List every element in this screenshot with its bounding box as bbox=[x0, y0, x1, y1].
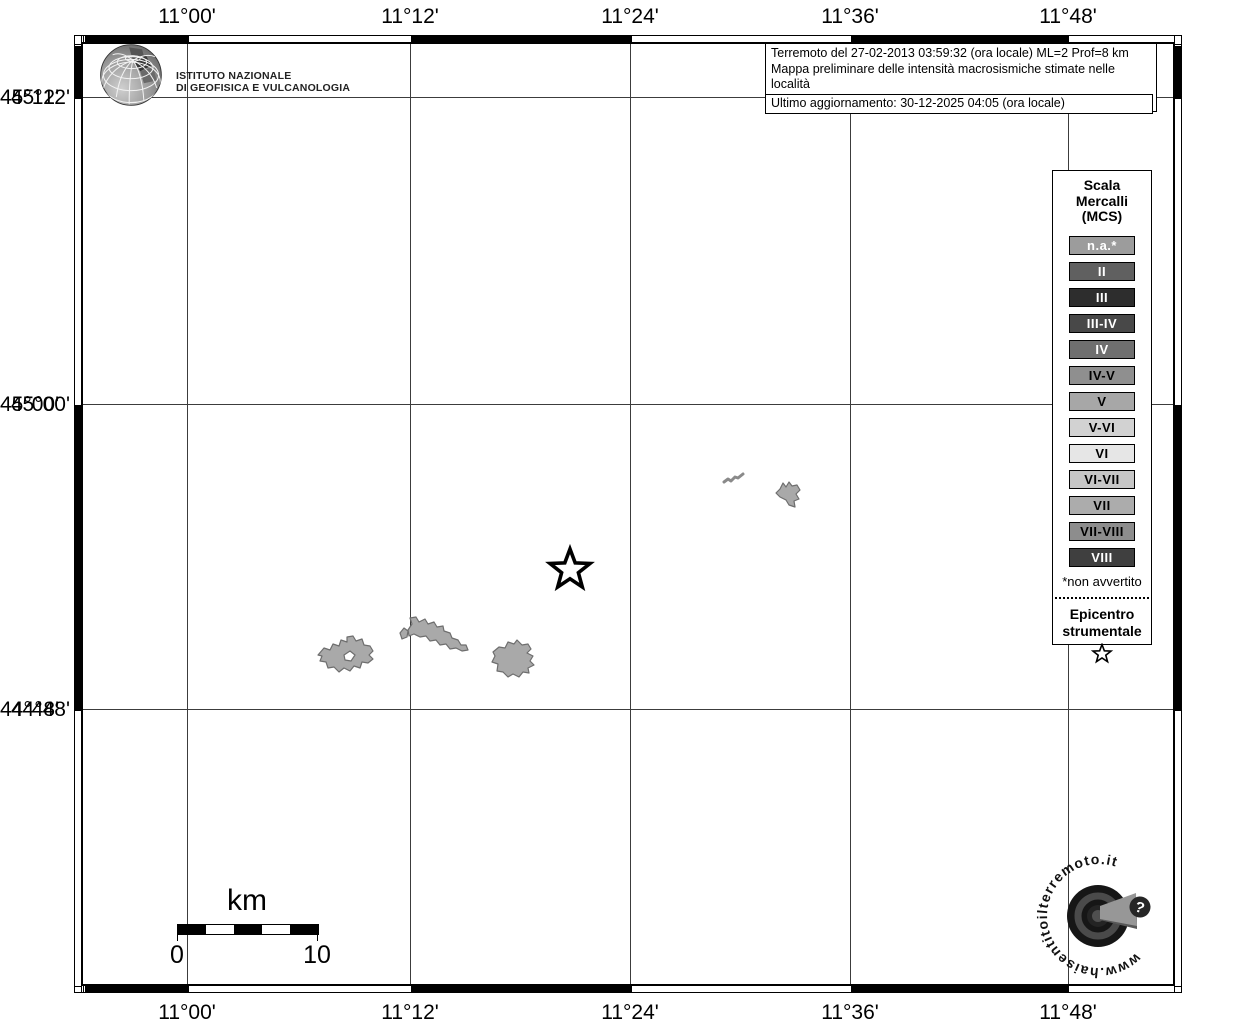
seismograph-icon bbox=[1067, 885, 1137, 947]
question-mark-icon: ? bbox=[1127, 894, 1153, 920]
earthquake-intensity-map: 11°00' 11°12' 11°24' 11°36' 11°48' 11°00… bbox=[0, 0, 1254, 1024]
lon-tick-label: 11°36' bbox=[802, 1001, 898, 1024]
scalebar bbox=[177, 924, 319, 935]
gridline bbox=[850, 44, 851, 984]
lon-tick-label: 11°12' bbox=[362, 5, 458, 29]
map-frame-left bbox=[74, 35, 82, 993]
legend-divider bbox=[1055, 597, 1149, 599]
legend-title-line2: Mercalli bbox=[1053, 194, 1151, 210]
lon-tick-label: 11°48' bbox=[1020, 5, 1116, 29]
legend-item-iv: IV bbox=[1069, 340, 1135, 359]
svg-text:?: ? bbox=[1133, 898, 1147, 917]
epicenter-legend-star-icon bbox=[1090, 643, 1114, 666]
scalebar-start-label: 0 bbox=[147, 941, 207, 970]
legend-item-vii: VII bbox=[1069, 496, 1135, 515]
map-frame-top bbox=[74, 35, 1182, 43]
epicenter-star-icon bbox=[550, 549, 590, 587]
legend-item-vi: VI bbox=[1069, 444, 1135, 463]
legend-title-line3: (MCS) bbox=[1053, 209, 1151, 225]
legend-item-vi-vii: VI-VII bbox=[1069, 470, 1135, 489]
lon-tick-label: 11°00' bbox=[139, 5, 235, 29]
scalebar-tick bbox=[177, 934, 178, 941]
legend-item-vii-viii: VII-VIII bbox=[1069, 522, 1135, 541]
locality-polygon bbox=[776, 482, 800, 507]
locality-polygon bbox=[400, 628, 408, 639]
locality-polygon bbox=[408, 617, 468, 651]
legend-item-v-vi: V-VI bbox=[1069, 418, 1135, 437]
locality-polygon bbox=[318, 636, 373, 672]
scalebar-unit-label: km bbox=[202, 884, 292, 918]
ingv-name-line1: ISTITUTO NAZIONALE bbox=[176, 70, 350, 83]
mercalli-legend: Scala Mercalli (MCS) n.a.*IIIIIIII-IVIVI… bbox=[1052, 170, 1152, 645]
legend-item-ii: II bbox=[1069, 262, 1135, 281]
ingv-globe-icon bbox=[94, 41, 168, 109]
locality-polygon bbox=[492, 640, 534, 677]
gridline bbox=[630, 44, 631, 984]
lat-tick-label: 45°12' bbox=[0, 86, 70, 110]
lon-tick-label: 11°48' bbox=[1020, 1001, 1116, 1024]
last-update-line: Ultimo aggiornamento: 30-12-2025 04:05 (… bbox=[771, 96, 1148, 111]
svg-text:www.haisentitoilterremoto.it: www.haisentitoilterremoto.it bbox=[1034, 851, 1145, 981]
legend-item-v: V bbox=[1069, 392, 1135, 411]
legend-title-line1: Scala bbox=[1053, 178, 1151, 194]
watermark-url-text: www.haisentitoilterremoto.it bbox=[1034, 851, 1145, 981]
legend-item-viii: VIII bbox=[1069, 548, 1135, 567]
scalebar-end-label: 10 bbox=[287, 941, 347, 970]
ingv-logo: ISTITUTO NAZIONALE DI GEOFISICA E VULCAN… bbox=[94, 41, 350, 109]
last-update-box: Ultimo aggiornamento: 30-12-2025 04:05 (… bbox=[765, 94, 1153, 114]
gridline bbox=[187, 44, 188, 984]
legend-item-iii: III bbox=[1069, 288, 1135, 307]
lon-tick-label: 11°36' bbox=[802, 5, 898, 29]
legend-title: Scala Mercalli (MCS) bbox=[1053, 178, 1151, 225]
map-frame-right bbox=[1174, 35, 1182, 993]
legend-footnote: *non avvertito bbox=[1053, 574, 1151, 589]
legend-items: n.a.*IIIIIIII-IVIVIV-VVV-VIVIVI-VIIVIIVI… bbox=[1053, 236, 1151, 567]
map-frame-bottom bbox=[74, 985, 1182, 993]
locality-polygon bbox=[724, 474, 743, 482]
map-inner-border bbox=[82, 43, 1174, 985]
lat-tick-label: 44°48' bbox=[0, 698, 70, 722]
epicenter-label-line2: strumentale bbox=[1053, 623, 1151, 640]
gridline bbox=[83, 404, 1173, 405]
lon-tick-label: 11°24' bbox=[582, 1001, 678, 1024]
lon-tick-label: 11°24' bbox=[582, 5, 678, 29]
legend-item-iv-v: IV-V bbox=[1069, 366, 1135, 385]
scalebar-tick bbox=[317, 934, 318, 941]
event-info-line1: Terremoto del 27-02-2013 03:59:32 (ora l… bbox=[771, 46, 1152, 62]
event-info-line2: Mappa preliminare delle intensità macros… bbox=[771, 62, 1152, 93]
lon-tick-label: 11°12' bbox=[362, 1001, 458, 1024]
legend-item-iii-iv: III-IV bbox=[1069, 314, 1135, 333]
lon-tick-label: 11°00' bbox=[139, 1001, 235, 1024]
gridline bbox=[410, 44, 411, 984]
legend-item-n.a.*: n.a.* bbox=[1069, 236, 1135, 255]
ingv-name-line2: DI GEOFISICA E VULCANOLOGIA bbox=[176, 82, 350, 95]
lat-tick-label: 45°00' bbox=[0, 393, 70, 417]
gridline bbox=[83, 709, 1173, 710]
epicenter-label-line1: Epicentro bbox=[1053, 606, 1151, 623]
